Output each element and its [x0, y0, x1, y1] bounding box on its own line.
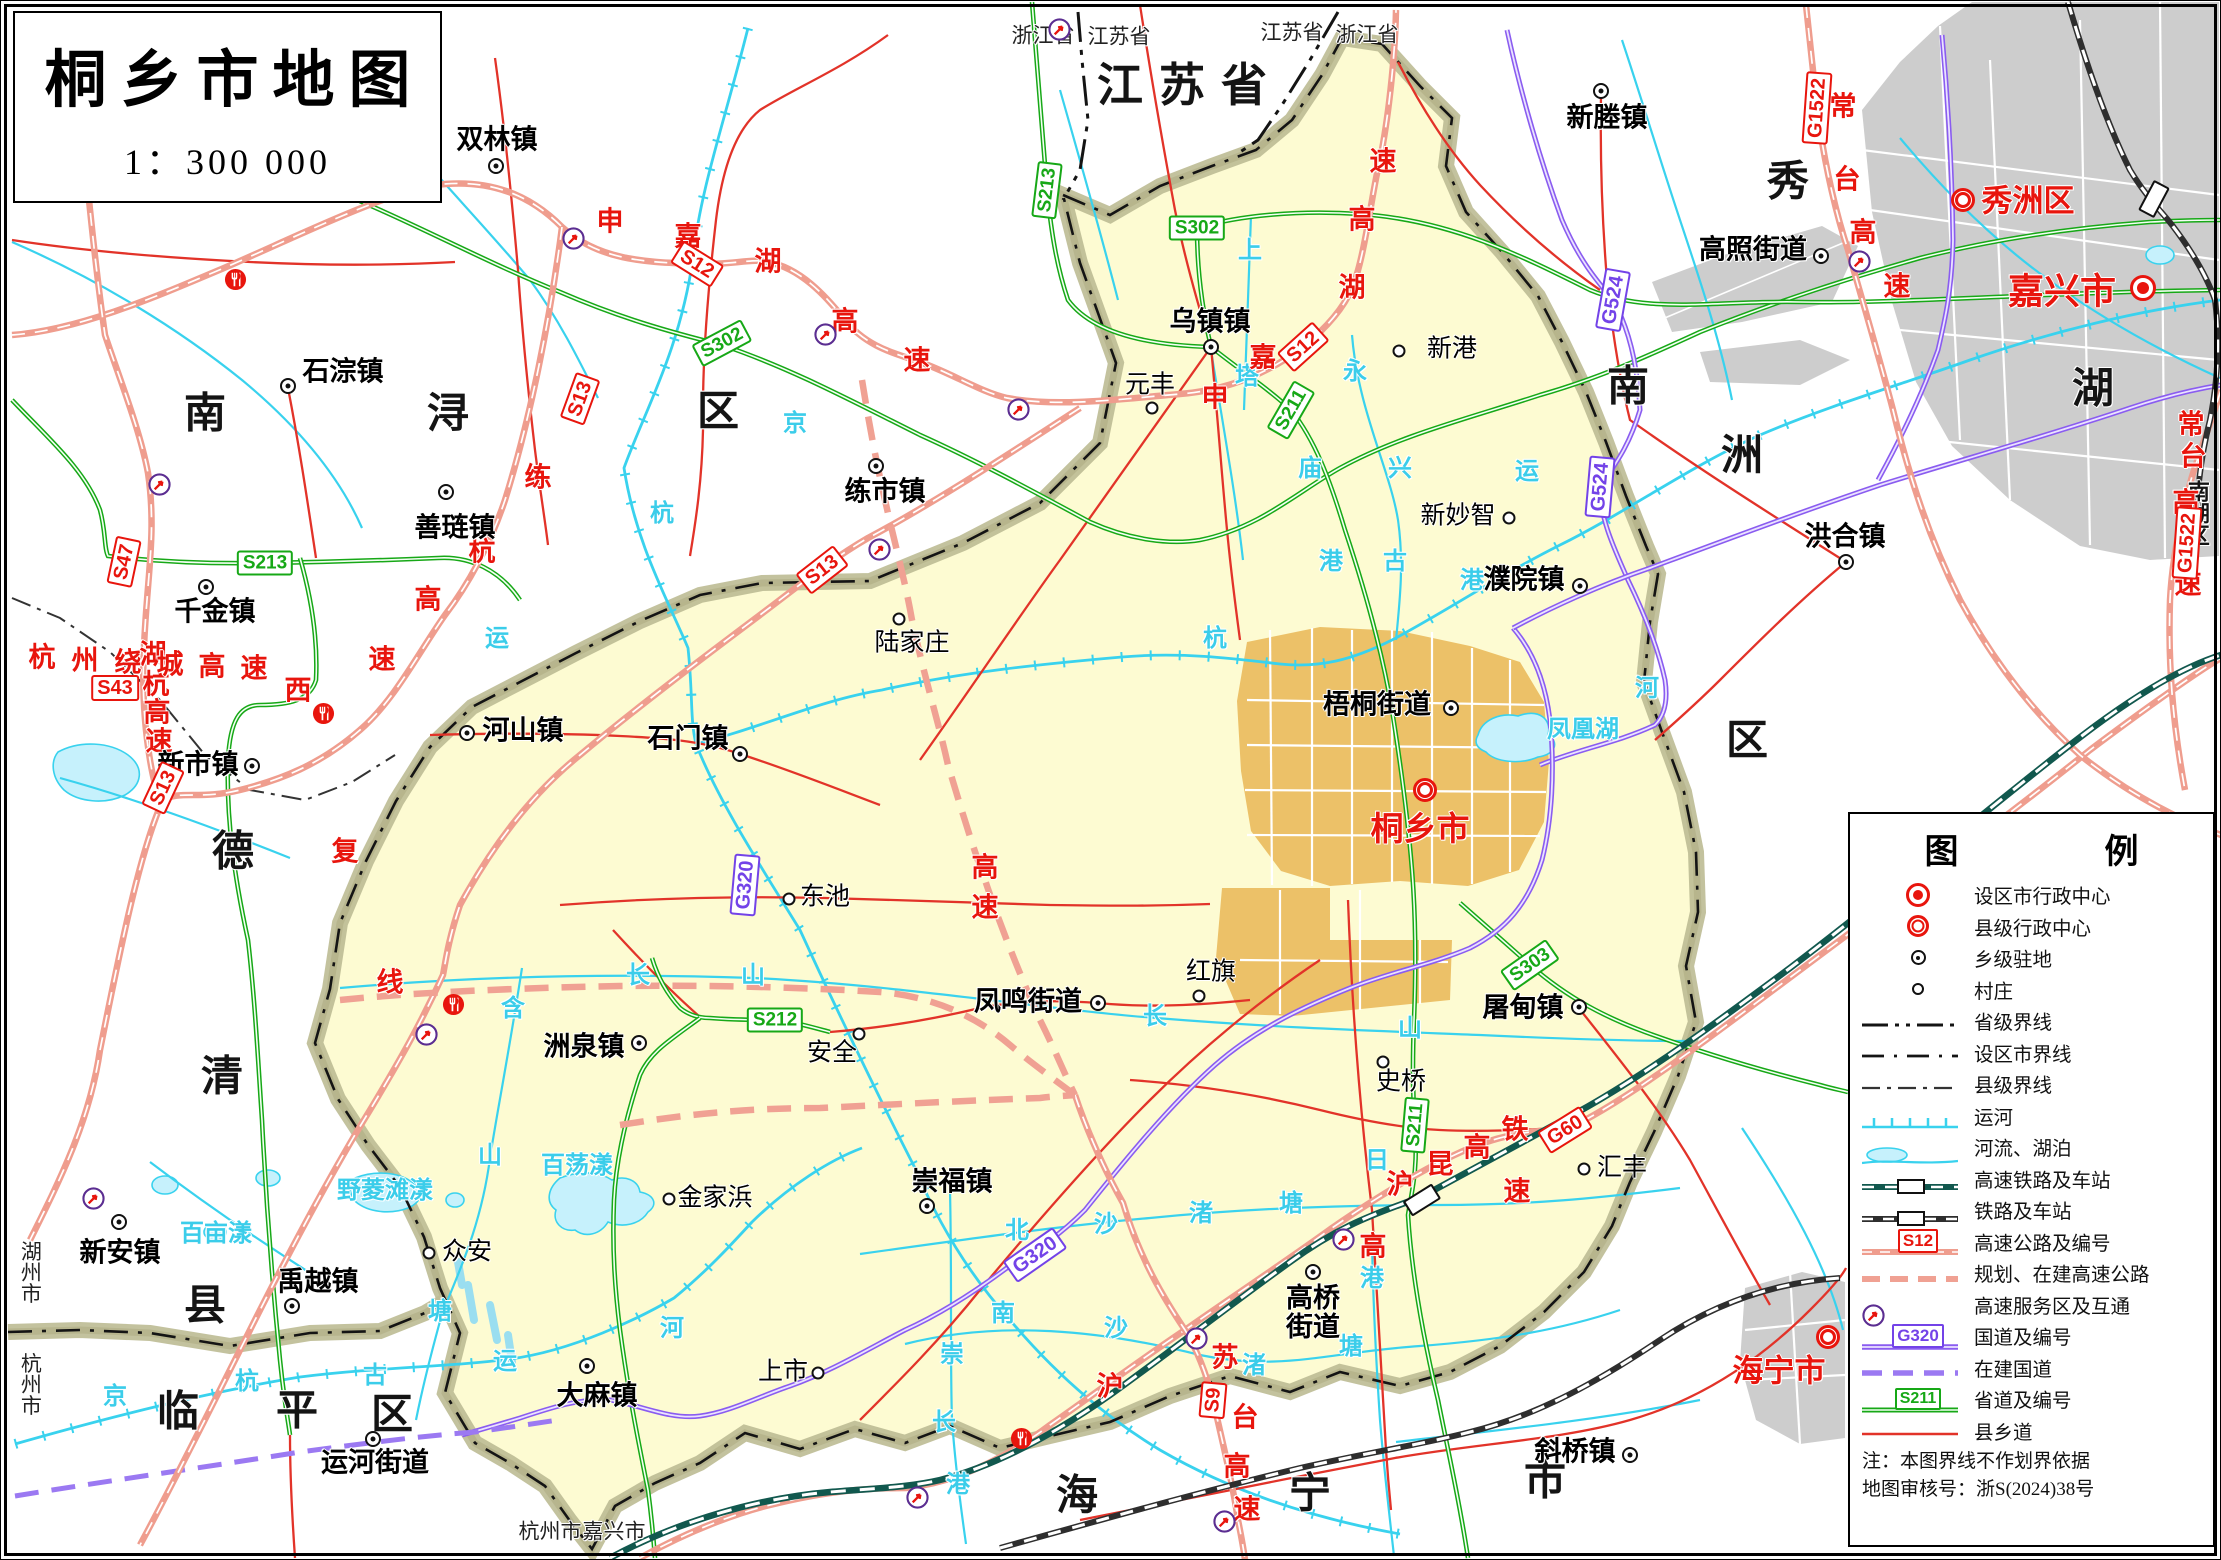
- place-symbol-town: [1090, 995, 1106, 1011]
- legend-label: 县级行政中心: [1974, 912, 2091, 941]
- road-name-label: 速: [1504, 1177, 1531, 1206]
- road-name-label: 常: [1830, 92, 1857, 121]
- place-symbol-town: [1203, 339, 1219, 355]
- region-label: 海: [1056, 1474, 1098, 1519]
- town-label: 元丰: [1125, 372, 1175, 399]
- river-label: 河: [660, 1317, 684, 1343]
- legend-item-river: 河流、湖泊: [1862, 1131, 2201, 1163]
- road-name-label: 绕: [115, 648, 142, 677]
- river-label: 古: [363, 1364, 387, 1390]
- legend-item-prov: S211省道及编号: [1862, 1383, 2201, 1415]
- legend-item-b_city: 设区市界线: [1862, 1037, 2201, 1069]
- legend-items: 设区市行政中心县级行政中心乡级驻地村庄省级界线设区市界线县级界线运河河流、湖泊高…: [1862, 879, 2201, 1446]
- road-name-label: 申: [1202, 383, 1229, 412]
- road-badge-g320: G320: [729, 854, 760, 917]
- legend-label: 河流、湖泊: [1974, 1132, 2072, 1161]
- place-symbol-town: [919, 1198, 935, 1214]
- region-label: 德: [212, 830, 254, 875]
- region-label: 清: [201, 1055, 243, 1100]
- legend-item-county: 县级行政中心: [1862, 911, 2201, 943]
- boundary-label: 江苏省: [1088, 26, 1151, 49]
- legend-item-village: 村庄: [1862, 974, 2201, 1006]
- river-label: 长: [1143, 1005, 1167, 1031]
- river-label: 杭: [650, 502, 674, 528]
- legend-item-natl: G320国道及编号: [1862, 1320, 2201, 1352]
- place-symbol-village: [893, 613, 906, 626]
- place-symbol-town: [1443, 700, 1459, 716]
- town-label: 凤鸣街道: [974, 987, 1082, 1016]
- river-label: 山: [741, 964, 765, 990]
- town-label: 崇福镇: [912, 1167, 993, 1196]
- place-symbol-village: [853, 1028, 866, 1041]
- railway-station: [2138, 180, 2170, 218]
- boundary-label: 湖州市: [19, 1241, 42, 1304]
- place-symbol-town: [1593, 83, 1609, 99]
- place-symbol-town: [1838, 554, 1854, 570]
- legend-item-b_cnty: 县级界线: [1862, 1068, 2201, 1100]
- road-badge-g524: G524: [1595, 268, 1631, 333]
- place-symbol-village: [1146, 402, 1159, 415]
- legend-label: 高速服务区及互通: [1974, 1290, 2130, 1319]
- town-label: 金家浜: [677, 1185, 752, 1212]
- place-symbol-village: [1193, 990, 1206, 1003]
- legend-item-expwy: S12高速公路及编号: [1862, 1226, 2201, 1258]
- river-label: 渚: [1189, 1202, 1213, 1228]
- road-name-label: 嘉: [1250, 343, 1277, 372]
- legend-label: 铁路及车站: [1974, 1195, 2072, 1224]
- map-scale: 1：300 000: [124, 133, 331, 185]
- city-label: 桐乡市: [1371, 813, 1470, 849]
- legend-item-pref: 设区市行政中心: [1862, 879, 2201, 911]
- road-name-label: 高: [1224, 1452, 1251, 1481]
- town-label: 洪合镇: [1805, 522, 1886, 551]
- river-label: 杭: [235, 1370, 259, 1396]
- river-label: 百荡漾: [541, 1154, 613, 1180]
- town-label: 上市: [758, 1359, 808, 1386]
- town-label: 洲泉镇: [544, 1032, 625, 1061]
- place-symbol-town: [198, 579, 214, 595]
- legend-label: 规划、在建高速公路: [1974, 1258, 2150, 1287]
- region-label: 南: [184, 392, 226, 437]
- road-badge-g1522: G1522: [1802, 71, 1833, 145]
- town-label: 安全: [807, 1040, 857, 1067]
- region-label: 区: [1726, 719, 1768, 764]
- road-name-label: 台: [2180, 442, 2207, 471]
- river-label: 沙: [1094, 1213, 1118, 1239]
- road-name-label: 速: [904, 346, 931, 375]
- road-name-label: 铁: [1502, 1115, 1529, 1144]
- road-badge-s12: S12: [1277, 321, 1330, 372]
- river-label: 野菱滩漾: [337, 1179, 433, 1205]
- river-label: 港: [946, 1473, 970, 1499]
- road-name-label: 高: [1464, 1133, 1491, 1162]
- place-symbol-village: [1503, 512, 1516, 525]
- road-name-label: 速: [1370, 147, 1397, 176]
- river-label: 长: [932, 1411, 956, 1437]
- legend-note-2: 地图审核号：浙S(2024)38号: [1862, 1478, 2201, 1502]
- road-badge-s211: S211: [1400, 1096, 1430, 1153]
- road-name-label: 高: [144, 698, 171, 727]
- legend-item-hsr: 高速铁路及车站: [1862, 1163, 2201, 1195]
- town-label: 大麻镇: [557, 1381, 638, 1410]
- road-name-label: 常: [2178, 410, 2205, 439]
- legend-label: 高速公路及编号: [1974, 1227, 2111, 1256]
- region-label: 湖: [2072, 367, 2114, 412]
- legend-item-town: 乡级驻地: [1862, 942, 2201, 974]
- place-symbol-town: [365, 1431, 381, 1447]
- town-label: 练市镇: [845, 477, 926, 506]
- river-label: 港: [1319, 550, 1343, 576]
- place-symbol-pref: [2130, 275, 2156, 301]
- town-label: 石淙镇: [303, 357, 384, 386]
- river-label: 港: [1360, 1267, 1384, 1293]
- place-symbol-village: [663, 1193, 676, 1206]
- town-label: 新安镇: [80, 1238, 161, 1267]
- place-symbol-town: [579, 1358, 595, 1374]
- road-name-label: 速: [369, 645, 396, 674]
- road-badge-g60: G60: [1537, 1106, 1593, 1154]
- region-label: 浔: [427, 392, 469, 437]
- road-name-label: 城: [157, 650, 184, 679]
- river-label: 沙: [1104, 1317, 1128, 1343]
- road-name-label: 台: [1232, 1403, 1259, 1432]
- river-label: 塘: [1279, 1192, 1303, 1218]
- road-name-label: 高: [972, 853, 999, 882]
- place-symbol-village: [783, 893, 796, 906]
- place-symbol-village: [1578, 1163, 1591, 1176]
- legend-symbol-county: [1862, 915, 1974, 937]
- road-name-label: 高: [1850, 218, 1877, 247]
- town-label: 众安: [442, 1239, 492, 1266]
- place-symbol-town: [1571, 999, 1587, 1015]
- town-label: 梧桐街道: [1323, 690, 1431, 719]
- road-name-label: 湖: [1339, 273, 1366, 302]
- road-name-label: 昆: [1427, 1150, 1454, 1179]
- town-label: 高桥 街道: [1286, 1284, 1340, 1342]
- road-badge-s303: S303: [1500, 939, 1561, 992]
- river-label: 山: [1398, 1017, 1422, 1043]
- town-label: 新妙智: [1420, 503, 1495, 530]
- town-label: 运河街道: [321, 1448, 429, 1477]
- legend-label: 设区市行政中心: [1974, 880, 2111, 909]
- town-label: 高照街道: [1699, 235, 1807, 264]
- river-label: 杭: [1203, 627, 1227, 653]
- city-label: 海宁市: [1733, 1354, 1826, 1387]
- road-name-label: 速: [1234, 1495, 1261, 1524]
- road-badge-g1522: G1522: [2172, 506, 2203, 580]
- map: 江苏省南浔区德清县临平区海宁市秀洲区南湖南湖区浙江省江苏省江苏省浙江省湖州市杭州…: [0, 0, 2221, 1560]
- legend-label: 在建国道: [1974, 1353, 2052, 1382]
- river-label: 运: [1515, 460, 1539, 486]
- legend-symbol-village: [1862, 983, 1974, 995]
- road-name-label: 沪: [1387, 1170, 1414, 1199]
- town-label: 河山镇: [483, 716, 564, 745]
- place-symbol-town: [459, 725, 475, 741]
- boundary-label: 浙江省: [1336, 24, 1399, 47]
- legend-label: 省道及编号: [1974, 1384, 2072, 1413]
- town-label: 新港: [1427, 336, 1477, 363]
- legend-item-rail: 铁路及车站: [1862, 1194, 2201, 1226]
- road-name-label: 湖: [755, 247, 782, 276]
- town-label: 禹越镇: [278, 1267, 359, 1296]
- town-label: 红旗: [1186, 959, 1236, 986]
- place-symbol-town: [1813, 248, 1829, 264]
- place-symbol-county: [1413, 778, 1437, 802]
- road-name-label: 复: [332, 837, 359, 866]
- place-symbol-village: [812, 1367, 825, 1380]
- legend-label: 县级界线: [1974, 1069, 2052, 1098]
- place-symbol-town: [1572, 578, 1588, 594]
- place-symbol-town: [244, 758, 260, 774]
- town-label: 濮院镇: [1484, 565, 1565, 594]
- town-label: 斜桥镇: [1535, 1437, 1616, 1466]
- boundary-label: 江苏省: [1261, 22, 1324, 45]
- river-label: 塘: [428, 1300, 452, 1326]
- road-name-label: 杭: [29, 643, 56, 672]
- road-name-label: 高: [1349, 205, 1376, 234]
- town-label: 东池: [800, 884, 850, 911]
- place-symbol-town: [1622, 1447, 1638, 1463]
- town-label: 双林镇: [457, 125, 538, 154]
- boundary-label: 杭州市: [519, 1521, 582, 1544]
- town-label: 史桥: [1376, 1069, 1426, 1096]
- river-label: 上: [1238, 239, 1262, 265]
- legend-label: 设区市界线: [1974, 1038, 2072, 1067]
- river-label: 永: [1343, 360, 1367, 386]
- town-label: 汇丰: [1597, 1155, 1647, 1182]
- place-symbol-town: [111, 1214, 127, 1230]
- town-label: 屠甸镇: [1483, 993, 1564, 1022]
- road-badge-s302: S302: [1169, 216, 1225, 241]
- place-symbol-village: [1393, 345, 1406, 358]
- road-badge-s13: S13: [560, 372, 601, 426]
- legend-title: 图 例: [1862, 824, 2201, 873]
- river-label: 百亩漾: [180, 1222, 252, 1248]
- place-symbol-town: [488, 158, 504, 174]
- road-name-label: 苏: [1212, 1343, 1239, 1372]
- road-name-label: 高: [415, 585, 442, 614]
- region-label: 平: [276, 1389, 318, 1434]
- legend-label: 运河: [1974, 1101, 2013, 1130]
- river-label: 山: [478, 1144, 502, 1170]
- place-symbol-town: [280, 378, 296, 394]
- town-label: 石门镇: [648, 724, 729, 753]
- river-label: 河: [1635, 677, 1659, 703]
- road-name-label: 西: [285, 676, 312, 705]
- river-label: 北: [1005, 1219, 1029, 1245]
- legend: 图 例 设区市行政中心县级行政中心乡级驻地村庄省级界线设区市界线县级界线运河河流…: [1848, 812, 2215, 1547]
- river-label: 港: [1460, 569, 1484, 595]
- region-label: 南: [1607, 365, 1649, 410]
- road-badge-s213: S213: [1031, 160, 1063, 219]
- road-badge-s9: S9: [1198, 1381, 1227, 1420]
- region-label: 临: [157, 1390, 199, 1435]
- river-label: 长: [626, 964, 650, 990]
- road-name-label: 速: [241, 654, 268, 683]
- boundary-label: 杭州市: [19, 1353, 42, 1416]
- road-badge-s13: S13: [141, 761, 185, 815]
- river-label: 古: [1383, 550, 1407, 576]
- road-name-label: 速: [972, 893, 999, 922]
- region-label: 县: [184, 1284, 226, 1329]
- legend-symbol-town: [1862, 950, 1974, 965]
- road-name-label: 台: [1834, 165, 1861, 194]
- town-label: 千金镇: [175, 597, 256, 626]
- road-name-label: 高: [1360, 1232, 1387, 1261]
- river-label: 运: [485, 627, 509, 653]
- road-name-label: 州: [72, 646, 99, 675]
- town-label: 陆家庄: [874, 630, 949, 657]
- place-symbol-village: [423, 1247, 436, 1260]
- road-name-label: 高: [199, 652, 226, 681]
- river-label: 含: [501, 997, 525, 1023]
- road-badge-s47: S47: [106, 536, 141, 588]
- region-label: 洲: [1721, 434, 1763, 479]
- river-label: 南: [991, 1302, 1015, 1328]
- place-symbol-town: [284, 1298, 300, 1314]
- place-symbol-village: [1377, 1056, 1390, 1069]
- legend-label: 村庄: [1974, 975, 2013, 1004]
- town-label: 新塍镇: [1567, 103, 1648, 132]
- road-badge-g524: G524: [1584, 456, 1615, 519]
- map-title: 桐乡市地图: [44, 29, 424, 119]
- place-symbol-town: [732, 746, 748, 762]
- place-symbol-county: [1816, 1325, 1840, 1349]
- region-label: 宁: [1289, 1472, 1331, 1517]
- legend-label: 国道及编号: [1974, 1321, 2072, 1350]
- place-symbol-county: [1951, 188, 1975, 212]
- region-label: 江苏省: [1097, 61, 1283, 111]
- river-label: 崇: [940, 1343, 964, 1369]
- road-badge-s213: S213: [237, 551, 293, 576]
- region-label: 区: [697, 390, 739, 435]
- city-label: 秀洲区: [1982, 184, 2075, 217]
- road-badge-s211: S211: [1266, 380, 1315, 440]
- legend-note-1: 注：本图界线不作划界依据: [1862, 1450, 2201, 1474]
- place-symbol-town: [868, 458, 884, 474]
- legend-label: 县乡道: [1974, 1416, 2033, 1445]
- road-name-label: 线: [377, 968, 404, 997]
- road-badge-s43: S43: [91, 675, 139, 701]
- legend-symbol-pref: [1862, 883, 1974, 907]
- legend-item-b_prov: 省级界线: [1862, 1005, 2201, 1037]
- river-label: 京: [103, 1385, 127, 1411]
- road-name-label: 申: [597, 207, 624, 236]
- river-label: 运: [493, 1350, 517, 1376]
- river-label: 京: [783, 412, 807, 438]
- map-title-box: 桐乡市地图 1：300 000: [13, 11, 442, 203]
- river-label: 日: [1365, 1149, 1389, 1175]
- river-label: 兴: [1388, 457, 1412, 483]
- city-label: 嘉兴市: [2008, 273, 2116, 312]
- place-symbol-town: [1305, 1264, 1321, 1280]
- legend-label: 省级界线: [1974, 1006, 2052, 1035]
- legend-item-canal: 运河: [1862, 1100, 2201, 1132]
- town-label: 乌镇镇: [1170, 307, 1251, 336]
- road-badge-s302: S302: [691, 319, 753, 368]
- river-label: 庙: [1298, 457, 1322, 483]
- region-label: 秀: [1767, 160, 1809, 205]
- legend-item-service: 高速服务区及互通: [1862, 1289, 2201, 1321]
- town-label: 善琏镇: [415, 513, 496, 542]
- road-badge-s13: S13: [795, 545, 849, 595]
- place-symbol-town: [438, 484, 454, 500]
- road-name-label: 沪: [1097, 1372, 1124, 1401]
- legend-label: 乡级驻地: [1974, 943, 2052, 972]
- road-badge-s212: S212: [747, 1008, 803, 1033]
- legend-label: 高速铁路及车站: [1974, 1164, 2111, 1193]
- road-name-label: 练: [525, 463, 552, 492]
- river-label: 凤凰湖: [1547, 718, 1619, 744]
- boundary-label: 嘉兴市: [583, 1521, 646, 1544]
- river-label: 渚: [1242, 1354, 1266, 1380]
- road-name-label: 速: [1884, 272, 1911, 301]
- river-label: 塘: [1339, 1335, 1363, 1361]
- place-symbol-town: [631, 1035, 647, 1051]
